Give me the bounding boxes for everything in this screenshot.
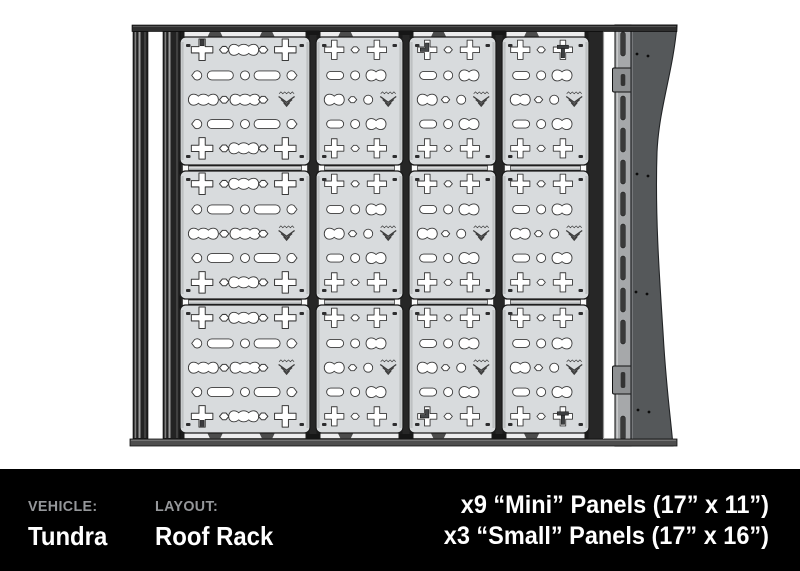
left-rail xyxy=(163,31,180,439)
side-fairing xyxy=(631,25,677,446)
panel-mini xyxy=(409,171,496,299)
panel-mini xyxy=(316,37,403,165)
spec-bar: VEHICLE: Tundra LAYOUT: Roof Rack x9 “Mi… xyxy=(0,469,800,571)
vehicle-value: Tundra xyxy=(28,521,107,552)
panel-small xyxy=(180,305,310,433)
panel-mini xyxy=(316,171,403,299)
panel-spec-mini: x9 “Mini” Panels (17” x 11”) xyxy=(444,490,769,521)
panel-mini xyxy=(502,305,589,433)
left-rail xyxy=(133,31,148,439)
layout-spec: LAYOUT: Roof Rack xyxy=(155,498,284,552)
layout-value: Roof Rack xyxy=(155,521,273,552)
panel-mini xyxy=(316,305,403,433)
panel-small xyxy=(180,171,310,299)
panel-spec-small: x3 “Small” Panels (17” x 16”) xyxy=(444,521,769,552)
side-rail xyxy=(604,25,634,446)
rack-illustration xyxy=(0,0,800,469)
panel-small xyxy=(180,37,310,165)
roof-rack-diagram xyxy=(0,0,800,469)
panels xyxy=(180,37,589,433)
panel-mini xyxy=(502,171,589,299)
panel-mini xyxy=(502,37,589,165)
vehicle-spec: VEHICLE: Tundra xyxy=(28,498,114,552)
product-layout-card: VEHICLE: Tundra LAYOUT: Roof Rack x9 “Mi… xyxy=(0,0,800,571)
panel-mini xyxy=(409,305,496,433)
panel-specs: x9 “Mini” Panels (17” x 11”) x3 “Small” … xyxy=(423,490,769,552)
panel-mini xyxy=(409,37,496,165)
vehicle-label: VEHICLE: xyxy=(28,498,110,515)
layout-label: LAYOUT: xyxy=(155,498,277,515)
